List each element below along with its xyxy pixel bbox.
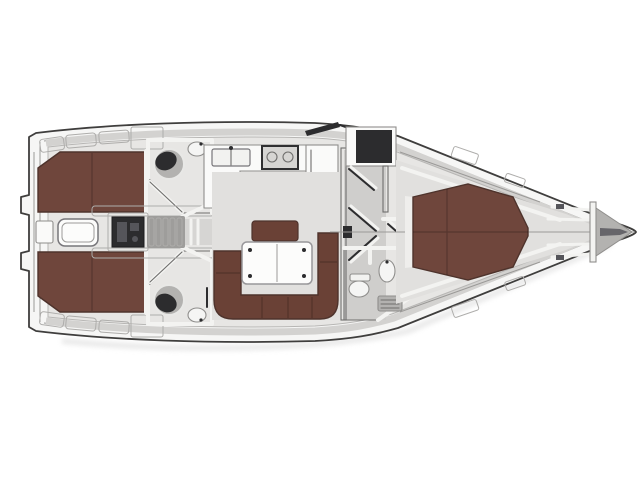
bow-cleat-port (556, 204, 564, 209)
engine-pedestal (112, 217, 144, 247)
toilet-forward (349, 281, 369, 297)
hanging-locker (356, 130, 392, 163)
chaise-bench (252, 221, 298, 241)
toilet-forward-tank (350, 274, 370, 281)
engine-detail-2 (130, 223, 139, 231)
yacht-floorplan-canvas (0, 0, 640, 480)
faucet-port-aft (199, 142, 202, 145)
yacht-floorplan (0, 0, 640, 480)
bow-rail-2 (548, 219, 590, 220)
table-bolt-3 (248, 274, 252, 278)
engine-detail-1 (117, 222, 127, 242)
bow-cleat-starboard (556, 255, 564, 260)
galley-faucet (229, 146, 233, 150)
bow-bulkhead (590, 202, 596, 262)
faucet-starboard-aft (199, 318, 202, 321)
table-bolt-1 (248, 248, 252, 252)
sink-port-aft (188, 142, 206, 156)
table-bolt-4 (302, 274, 306, 278)
table-bolt-2 (302, 248, 306, 252)
bow-rail-3 (548, 244, 590, 245)
liferaft-box (36, 221, 53, 243)
salon (212, 172, 340, 320)
faucet-forward (385, 260, 388, 263)
sink-starboard-aft (188, 308, 206, 322)
island-bed-headboard (405, 196, 413, 268)
companionway-steps-bg (147, 216, 185, 248)
engine-detail-3 (132, 236, 138, 242)
